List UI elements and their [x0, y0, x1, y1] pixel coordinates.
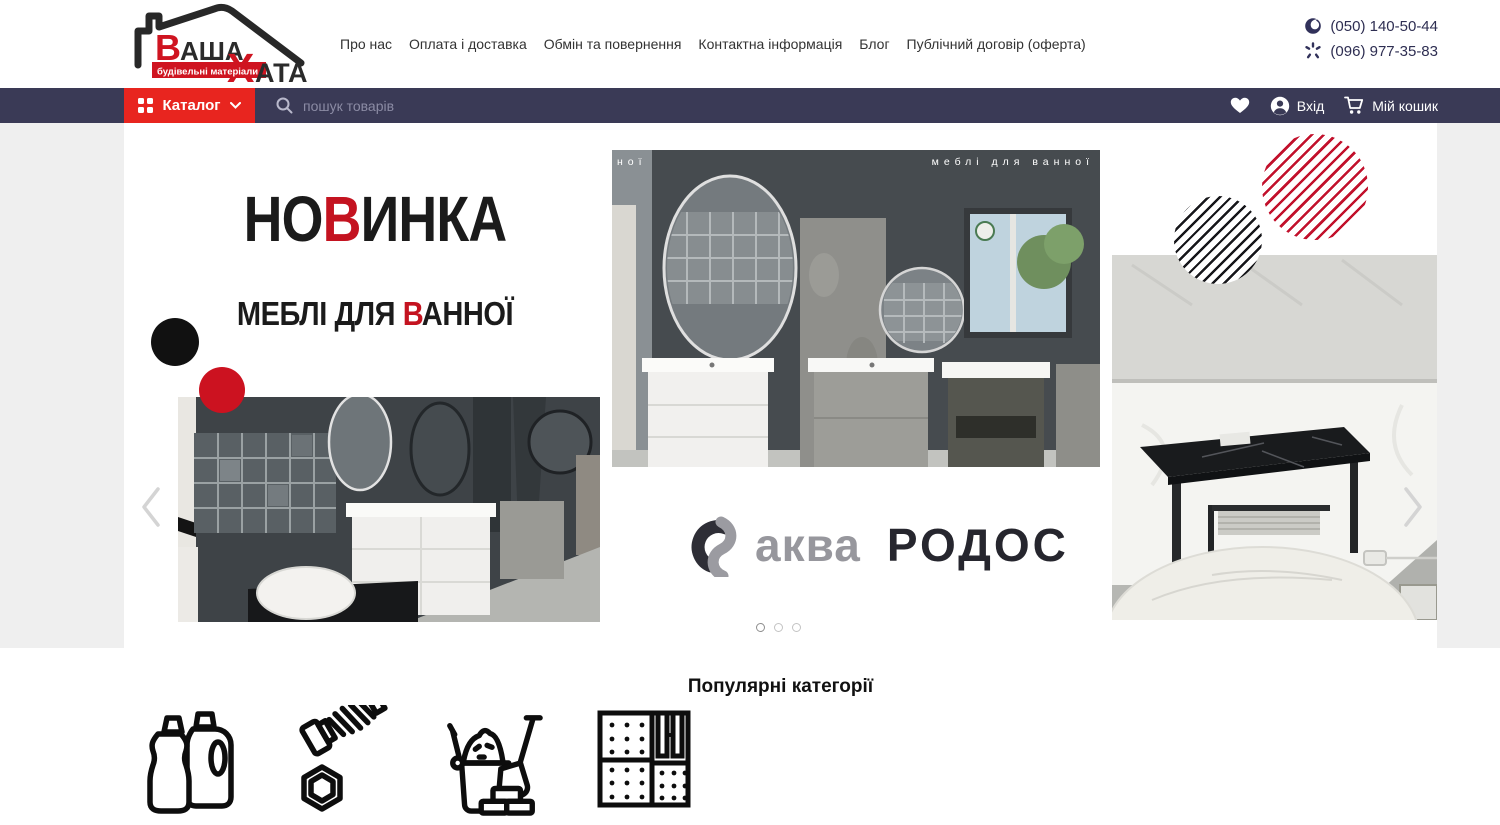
user-icon [1270, 96, 1290, 116]
chevron-left-icon [138, 483, 164, 531]
category-fasteners[interactable] [289, 705, 394, 825]
decor-striped-circle-black [1174, 196, 1262, 284]
carousel-dot-3[interactable] [792, 623, 801, 632]
photo-caption: меблі для ванної [930, 156, 1094, 168]
vodafone-icon [1304, 17, 1322, 35]
logo-word1-accent: В [155, 27, 181, 68]
logo-tagline: будівельні матеріали [157, 67, 258, 78]
brand-logo-akvarodos: аква РОДОС [683, 513, 1069, 577]
chevron-right-icon [1400, 483, 1426, 531]
search-icon [276, 97, 293, 114]
carousel-prev-button[interactable] [138, 483, 164, 531]
carousel-dots [756, 623, 801, 632]
wishlist-button[interactable] [1230, 97, 1250, 114]
heart-icon [1230, 97, 1250, 114]
site-logo[interactable]: В АША Х АТА будівельні матеріали [128, 1, 310, 91]
carousel-next-button[interactable] [1400, 483, 1426, 531]
nav-link-blog[interactable]: Блог [859, 36, 889, 52]
showroom-photo-left [178, 397, 600, 622]
carousel-dot-2[interactable] [774, 623, 783, 632]
chevron-down-icon [230, 102, 241, 109]
cart-icon [1344, 96, 1365, 115]
bucket-shovel-icon [440, 705, 545, 820]
brand-name-part1: аква [755, 518, 861, 572]
phone-block: (050) 140-50-44 (096) 977-35-83 [1304, 17, 1438, 60]
nav-link-payment-delivery[interactable]: Оплата і доставка [409, 36, 527, 52]
nav-link-contact-info[interactable]: Контактна інформація [698, 36, 842, 52]
site-header: В АША Х АТА будівельні матеріали Про нас… [0, 0, 1500, 88]
nav-link-exchange-return[interactable]: Обмін та повернення [544, 36, 682, 52]
catalog-button-label: Каталог [162, 97, 220, 114]
insulation-panels-icon [594, 705, 694, 813]
decor-striped-circle-red [1262, 134, 1368, 240]
categories-row [138, 705, 696, 825]
nav-link-public-offer[interactable]: Публічний договір (оферта) [907, 36, 1086, 52]
logo-word2-rest: АТА [255, 58, 307, 86]
search-box [276, 88, 603, 123]
slide-subtitle: МЕБЛІ ДЛЯ ВАННОЇ [181, 295, 568, 333]
login-button[interactable]: Вхід [1270, 96, 1324, 116]
logo-word2-accent: Х [227, 45, 254, 86]
search-input[interactable] [303, 98, 603, 114]
phone-number[interactable]: (050) 140-50-44 [1330, 18, 1438, 35]
nav-link-about[interactable]: Про нас [340, 36, 392, 52]
phone-row: (050) 140-50-44 [1304, 17, 1438, 35]
cart-label: Мій кошик [1372, 98, 1438, 114]
slide-title: НОВИНКА [211, 187, 539, 251]
detergent-bottles-icon [141, 705, 241, 820]
category-building-materials[interactable] [440, 705, 545, 825]
decor-circle-black [151, 318, 199, 366]
main-nav: Про нас Оплата і доставка Обмін та повер… [340, 0, 1086, 88]
showroom-photo-center [612, 150, 1100, 467]
bolt-nut-icon [290, 705, 393, 820]
logo-graphic: В АША Х АТА будівельні матеріали [128, 1, 310, 86]
cart-button[interactable]: Мій кошик [1344, 96, 1438, 115]
brand-mark-icon [683, 513, 741, 577]
hero-carousel: НОВИНКА МЕБЛІ ДЛЯ ВАННОЇ [0, 123, 1500, 648]
category-household-chemicals[interactable] [138, 705, 243, 825]
brand-name-part2: РОДОС [887, 518, 1069, 572]
login-label: Вхід [1297, 98, 1324, 114]
category-insulation-panels[interactable] [591, 705, 696, 825]
carousel-dot-1[interactable] [756, 623, 765, 632]
navbar-right: Вхід Мій кошик [1230, 88, 1438, 123]
tables-photo-right [1112, 255, 1437, 620]
top-navbar: Каталог Вхід [0, 88, 1500, 123]
phone-row: (096) 977-35-83 [1304, 42, 1438, 60]
decor-circle-red [199, 367, 245, 413]
photo-caption-fragment: ної [617, 156, 647, 168]
categories-heading: Популярні категорії [0, 676, 1500, 698]
popular-categories-section: Популярні категорії [0, 648, 1500, 820]
catalog-button[interactable]: Каталог [124, 88, 255, 123]
kyivstar-icon [1304, 42, 1322, 60]
phone-number[interactable]: (096) 977-35-83 [1330, 43, 1438, 60]
grid-icon [138, 98, 153, 113]
